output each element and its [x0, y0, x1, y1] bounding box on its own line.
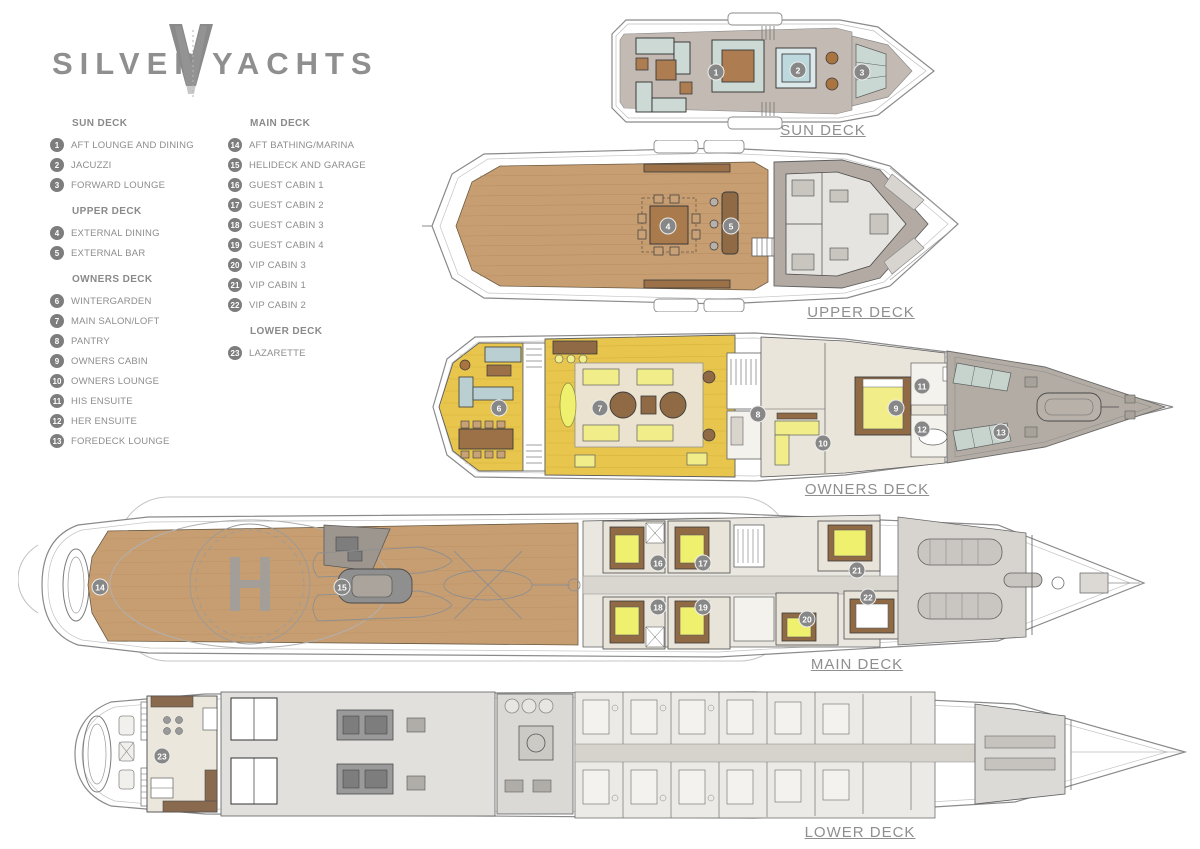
legend-column-1: SUN DECK1AFT LOUNGE AND DINING2JACUZZI3F…: [50, 118, 240, 454]
legend-item-9: 9OWNERS CABIN: [50, 354, 240, 368]
legend-item-3: 3FORWARD LOUNGE: [50, 178, 240, 192]
legend-item-number: 4: [50, 226, 64, 240]
lower-deck-drawing: [55, 678, 1190, 830]
legend-item-label: FOREDECK LOUNGE: [71, 436, 170, 447]
legend-item-15: 15HELIDECK AND GARAGE: [228, 158, 418, 172]
legend-item-22: 22VIP CABIN 2: [228, 298, 418, 312]
legend-item-number: 9: [50, 354, 64, 368]
legend-item-label: HER ENSUITE: [71, 416, 137, 427]
legend-item-number: 12: [50, 414, 64, 428]
legend-item-label: EXTERNAL DINING: [71, 228, 160, 239]
sun-deck-plan: 123: [600, 12, 940, 130]
legend-item-label: PANTRY: [71, 336, 110, 347]
legend-item-1: 1AFT LOUNGE AND DINING: [50, 138, 240, 152]
legend-item-number: 21: [228, 278, 242, 292]
legend-item-label: GUEST CABIN 2: [249, 200, 324, 211]
legend-item-label: JACUZZI: [71, 160, 111, 171]
legend-item-number: 17: [228, 198, 242, 212]
legend-item-19: 19GUEST CABIN 4: [228, 238, 418, 252]
legend-item-label: GUEST CABIN 3: [249, 220, 324, 231]
legend-item-number: 18: [228, 218, 242, 232]
upper-deck-plan: 45: [422, 140, 962, 312]
legend-item-number: 7: [50, 314, 64, 328]
legend-item-label: VIP CABIN 3: [249, 260, 306, 271]
owners-deck-drawing: [425, 325, 1180, 487]
legend-item-number: 14: [228, 138, 242, 152]
legend-item-number: 1: [50, 138, 64, 152]
legend-item-label: FORWARD LOUNGE: [71, 180, 165, 191]
main-deck-plan: 141516171819202122: [18, 495, 1148, 663]
legend-item-label: MAIN SALON/LOFT: [71, 316, 160, 327]
legend-item-number: 5: [50, 246, 64, 260]
deck-plan-page: SILVER YACHTS SUN DECK1AFT LOUNGE AND DI…: [0, 0, 1200, 849]
sun-deck-label: SUN DECK: [780, 122, 866, 139]
legend-item-number: 6: [50, 294, 64, 308]
lower-deck-plan: 23: [55, 678, 1190, 830]
legend-item-11: 11HIS ENSUITE: [50, 394, 240, 408]
main-deck-label: MAIN DECK: [811, 656, 903, 673]
legend-section-title: UPPER DECK: [72, 206, 240, 217]
legend-item-label: HELIDECK AND GARAGE: [249, 160, 366, 171]
legend-item-number: 19: [228, 238, 242, 252]
legend-item-label: VIP CABIN 1: [249, 280, 306, 291]
legend-item-label: VIP CABIN 2: [249, 300, 306, 311]
legend-item-label: AFT LOUNGE AND DINING: [71, 140, 194, 151]
legend-item-21: 21VIP CABIN 1: [228, 278, 418, 292]
legend-item-5: 5EXTERNAL BAR: [50, 246, 240, 260]
legend-item-label: AFT BATHING/MARINA: [249, 140, 354, 151]
legend-item-label: HIS ENSUITE: [71, 396, 133, 407]
legend-item-18: 18GUEST CABIN 3: [228, 218, 418, 232]
legend-column-2: MAIN DECK14AFT BATHING/MARINA15HELIDECK …: [228, 118, 418, 366]
legend-item-16: 16GUEST CABIN 1: [228, 178, 418, 192]
upper-deck-drawing: [422, 140, 962, 312]
legend-item-label: GUEST CABIN 1: [249, 180, 324, 191]
legend-section-title: MAIN DECK: [250, 118, 418, 129]
legend-item-7: 7MAIN SALON/LOFT: [50, 314, 240, 328]
lower-deck-label: LOWER DECK: [805, 824, 916, 841]
legend-item-20: 20VIP CABIN 3: [228, 258, 418, 272]
legend-item-4: 4EXTERNAL DINING: [50, 226, 240, 240]
main-deck-drawing: [18, 495, 1148, 663]
upper-deck-label: UPPER DECK: [807, 304, 915, 321]
legend-item-2: 2JACUZZI: [50, 158, 240, 172]
owners-deck-plan: 678910111213: [425, 325, 1180, 487]
legend-item-label: GUEST CABIN 4: [249, 240, 324, 251]
legend-item-label: EXTERNAL BAR: [71, 248, 145, 259]
legend-item-label: LAZARETTE: [249, 348, 306, 359]
legend-item-number: 10: [50, 374, 64, 388]
brand-logo: SILVER YACHTS: [52, 38, 372, 108]
legend-item-number: 8: [50, 334, 64, 348]
legend-item-23: 23LAZARETTE: [228, 346, 418, 360]
legend-item-number: 23: [228, 346, 242, 360]
legend-item-number: 15: [228, 158, 242, 172]
legend-item-number: 3: [50, 178, 64, 192]
sun-deck-drawing: [600, 12, 940, 130]
legend-item-number: 20: [228, 258, 242, 272]
legend-item-14: 14AFT BATHING/MARINA: [228, 138, 418, 152]
legend-section-title: SUN DECK: [72, 118, 240, 129]
legend-item-number: 2: [50, 158, 64, 172]
legend-section-title: LOWER DECK: [250, 326, 418, 337]
legend-item-13: 13FOREDECK LOUNGE: [50, 434, 240, 448]
brand-name-yachts: YACHTS: [212, 46, 379, 82]
legend-item-number: 22: [228, 298, 242, 312]
legend-item-10: 10OWNERS LOUNGE: [50, 374, 240, 388]
legend-item-6: 6WINTERGARDEN: [50, 294, 240, 308]
legend-item-number: 11: [50, 394, 64, 408]
legend-item-17: 17GUEST CABIN 2: [228, 198, 418, 212]
legend-item-number: 13: [50, 434, 64, 448]
legend-item-12: 12HER ENSUITE: [50, 414, 240, 428]
legend-item-label: WINTERGARDEN: [71, 296, 152, 307]
legend-item-number: 16: [228, 178, 242, 192]
legend-item-label: OWNERS CABIN: [71, 356, 148, 367]
legend-item-label: OWNERS LOUNGE: [71, 376, 159, 387]
legend-item-8: 8PANTRY: [50, 334, 240, 348]
legend-section-title: OWNERS DECK: [72, 274, 240, 285]
